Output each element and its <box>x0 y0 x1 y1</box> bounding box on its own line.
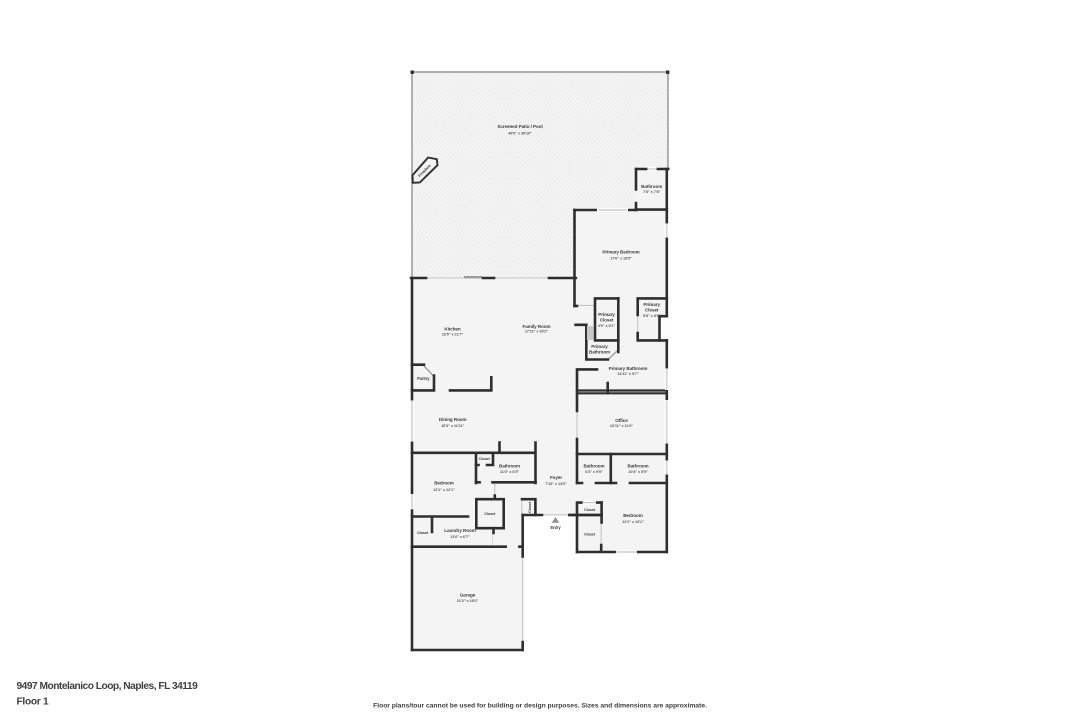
svg-text:Bathroom: Bathroom <box>589 349 610 354</box>
svg-text:5'8" x 8'1": 5'8" x 8'1" <box>643 314 661 318</box>
svg-text:Screened Patio / Pool: Screened Patio / Pool <box>497 124 542 129</box>
svg-text:Dining Room: Dining Room <box>439 417 467 422</box>
svg-text:Closet: Closet <box>584 508 596 512</box>
svg-text:16'5" x 21'7": 16'5" x 21'7" <box>442 332 464 336</box>
svg-text:Primary Bedroom: Primary Bedroom <box>602 250 639 255</box>
svg-text:Kitchen: Kitchen <box>444 327 461 332</box>
svg-text:Closet: Closet <box>528 501 532 513</box>
svg-text:Family Room: Family Room <box>523 324 551 329</box>
svg-text:Primary: Primary <box>591 344 608 349</box>
svg-text:7'8" x 7'8": 7'8" x 7'8" <box>643 190 661 194</box>
svg-text:21'3" x 18'2": 21'3" x 18'2" <box>457 599 479 603</box>
svg-text:Primary: Primary <box>598 312 615 317</box>
svg-text:Entry: Entry <box>550 525 561 530</box>
svg-text:11'6" x 6'7": 11'6" x 6'7" <box>450 535 470 539</box>
svg-text:Closet: Closet <box>584 533 596 537</box>
svg-text:Pantry: Pantry <box>417 376 430 381</box>
svg-text:7'10" x 13'0": 7'10" x 13'0" <box>545 482 567 486</box>
svg-text:Primary: Primary <box>643 302 660 307</box>
svg-text:Garage: Garage <box>460 593 476 598</box>
svg-text:17'6" x 18'5": 17'6" x 18'5" <box>610 256 632 260</box>
svg-text:4'5" x 8'1": 4'5" x 8'1" <box>598 324 616 328</box>
svg-text:Closet: Closet <box>479 457 491 461</box>
svg-text:Closet: Closet <box>600 318 614 323</box>
svg-text:Bathroom: Bathroom <box>627 464 648 469</box>
svg-text:12'1" x 12'1": 12'1" x 12'1" <box>433 488 455 492</box>
svg-text:Closet: Closet <box>484 512 496 516</box>
svg-text:15'3" x 11'11": 15'3" x 11'11" <box>441 424 464 428</box>
svg-text:11'0" x 6'5": 11'0" x 6'5" <box>500 470 520 474</box>
svg-text:Bathroom: Bathroom <box>583 464 604 469</box>
svg-text:9497 Montelanico Loop, Naples,: 9497 Montelanico Loop, Naples, FL 34119 <box>17 681 199 692</box>
svg-text:16'11" x 11'9": 16'11" x 11'9" <box>610 424 633 428</box>
svg-text:6'3" x 9'5": 6'3" x 9'5" <box>585 470 603 474</box>
svg-text:Bedroom: Bedroom <box>434 481 454 486</box>
svg-text:Office: Office <box>615 418 628 423</box>
svg-text:Floor 1: Floor 1 <box>17 697 49 708</box>
svg-text:49'0" x 39'10": 49'0" x 39'10" <box>508 131 532 135</box>
svg-text:12'2" x 13'1": 12'2" x 13'1" <box>622 520 644 524</box>
svg-text:10'4" x 5'5": 10'4" x 5'5" <box>628 470 648 474</box>
svg-text:Closet: Closet <box>645 308 659 313</box>
svg-text:Foyer: Foyer <box>550 475 562 480</box>
svg-text:Bedroom: Bedroom <box>623 513 643 518</box>
svg-text:Bathroom: Bathroom <box>641 184 662 189</box>
svg-text:17'11" x 30'2": 17'11" x 30'2" <box>525 329 549 333</box>
svg-text:Laundry Room: Laundry Room <box>444 528 475 533</box>
svg-text:Floor plans/tour cannot be use: Floor plans/tour cannot be used for buil… <box>373 703 707 710</box>
svg-text:Bathroom: Bathroom <box>499 464 520 469</box>
svg-text:Primary Bathroom: Primary Bathroom <box>609 366 648 371</box>
svg-text:14'11" x 9'7": 14'11" x 9'7" <box>617 372 639 376</box>
svg-text:Closet: Closet <box>417 531 429 535</box>
